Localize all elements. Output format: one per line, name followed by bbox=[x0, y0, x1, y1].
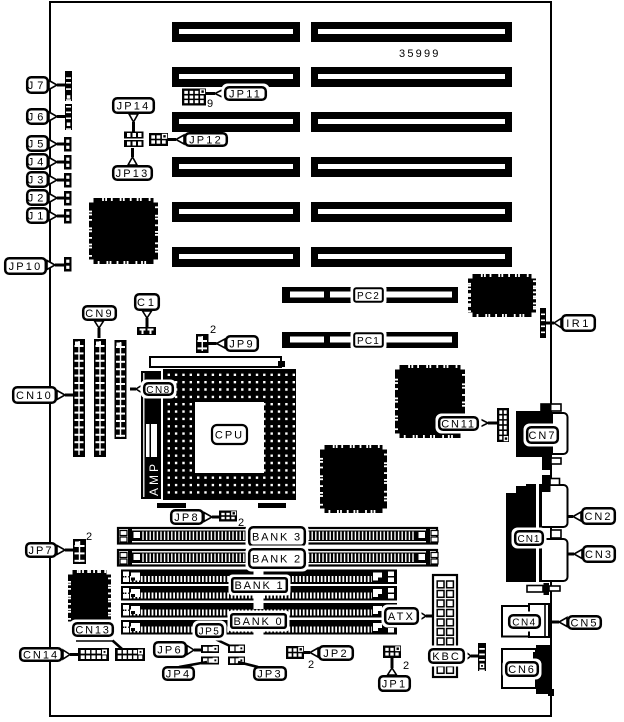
svg-text:JP4: JP4 bbox=[166, 669, 192, 681]
svg-text:AMP: AMP bbox=[147, 461, 161, 496]
svg-text:2: 2 bbox=[210, 324, 216, 336]
svg-text:JP5: JP5 bbox=[199, 627, 221, 638]
svg-text:JP9: JP9 bbox=[229, 339, 255, 351]
svg-text:JP8: JP8 bbox=[174, 512, 200, 524]
svg-text:PC1: PC1 bbox=[357, 336, 380, 347]
svg-text:CN4: CN4 bbox=[512, 618, 537, 629]
svg-text:2: 2 bbox=[308, 659, 314, 671]
svg-text:J5: J5 bbox=[28, 139, 48, 151]
svg-text:JP1: JP1 bbox=[382, 679, 408, 691]
svg-text:CN2: CN2 bbox=[584, 511, 612, 523]
svg-text:CN1: CN1 bbox=[517, 534, 540, 545]
svg-text:CN10: CN10 bbox=[16, 390, 53, 402]
svg-text:CN14: CN14 bbox=[23, 650, 59, 662]
svg-text:CN6: CN6 bbox=[508, 664, 535, 676]
svg-text:CN13: CN13 bbox=[75, 625, 110, 637]
svg-text:JP11: JP11 bbox=[229, 89, 262, 101]
svg-text:IR1: IR1 bbox=[566, 318, 591, 330]
svg-text:JP13: JP13 bbox=[116, 168, 150, 180]
svg-text:JP12: JP12 bbox=[189, 135, 223, 147]
svg-text:JP6: JP6 bbox=[157, 645, 183, 657]
svg-text:J2: J2 bbox=[28, 193, 48, 205]
svg-text:J4: J4 bbox=[28, 157, 48, 169]
svg-text:CN3: CN3 bbox=[585, 549, 613, 561]
svg-text:JP10: JP10 bbox=[9, 261, 43, 273]
svg-text:BANK 2: BANK 2 bbox=[252, 554, 302, 566]
svg-text:JP3: JP3 bbox=[257, 669, 283, 681]
svg-text:CN5: CN5 bbox=[570, 618, 598, 630]
svg-text:CN7: CN7 bbox=[528, 430, 556, 442]
svg-text:J1: J1 bbox=[28, 211, 48, 223]
svg-text:J3: J3 bbox=[28, 175, 48, 187]
svg-text:CN9: CN9 bbox=[85, 308, 114, 320]
svg-text:J6: J6 bbox=[28, 112, 48, 124]
svg-text:JP2: JP2 bbox=[323, 648, 349, 660]
svg-text:JP14: JP14 bbox=[117, 101, 151, 113]
svg-text:2: 2 bbox=[86, 531, 92, 543]
svg-text:CN8: CN8 bbox=[146, 385, 171, 396]
svg-text:JP7: JP7 bbox=[29, 545, 54, 557]
svg-text:C1: C1 bbox=[137, 297, 157, 309]
svg-text:BANK 0: BANK 0 bbox=[234, 616, 284, 628]
svg-text:PC2: PC2 bbox=[357, 291, 380, 302]
svg-text:BANK 3: BANK 3 bbox=[252, 532, 302, 544]
svg-text:CN11: CN11 bbox=[441, 419, 476, 431]
svg-text:KBC: KBC bbox=[432, 651, 461, 663]
svg-text:2: 2 bbox=[238, 517, 244, 529]
svg-text:2: 2 bbox=[403, 660, 409, 672]
svg-text:ATX: ATX bbox=[388, 611, 415, 623]
svg-text:J7: J7 bbox=[28, 80, 48, 92]
svg-text:9: 9 bbox=[207, 98, 213, 110]
svg-text:CPU: CPU bbox=[215, 430, 244, 442]
svg-text:BANK 1: BANK 1 bbox=[235, 580, 285, 592]
svg-text:35999: 35999 bbox=[399, 48, 441, 60]
